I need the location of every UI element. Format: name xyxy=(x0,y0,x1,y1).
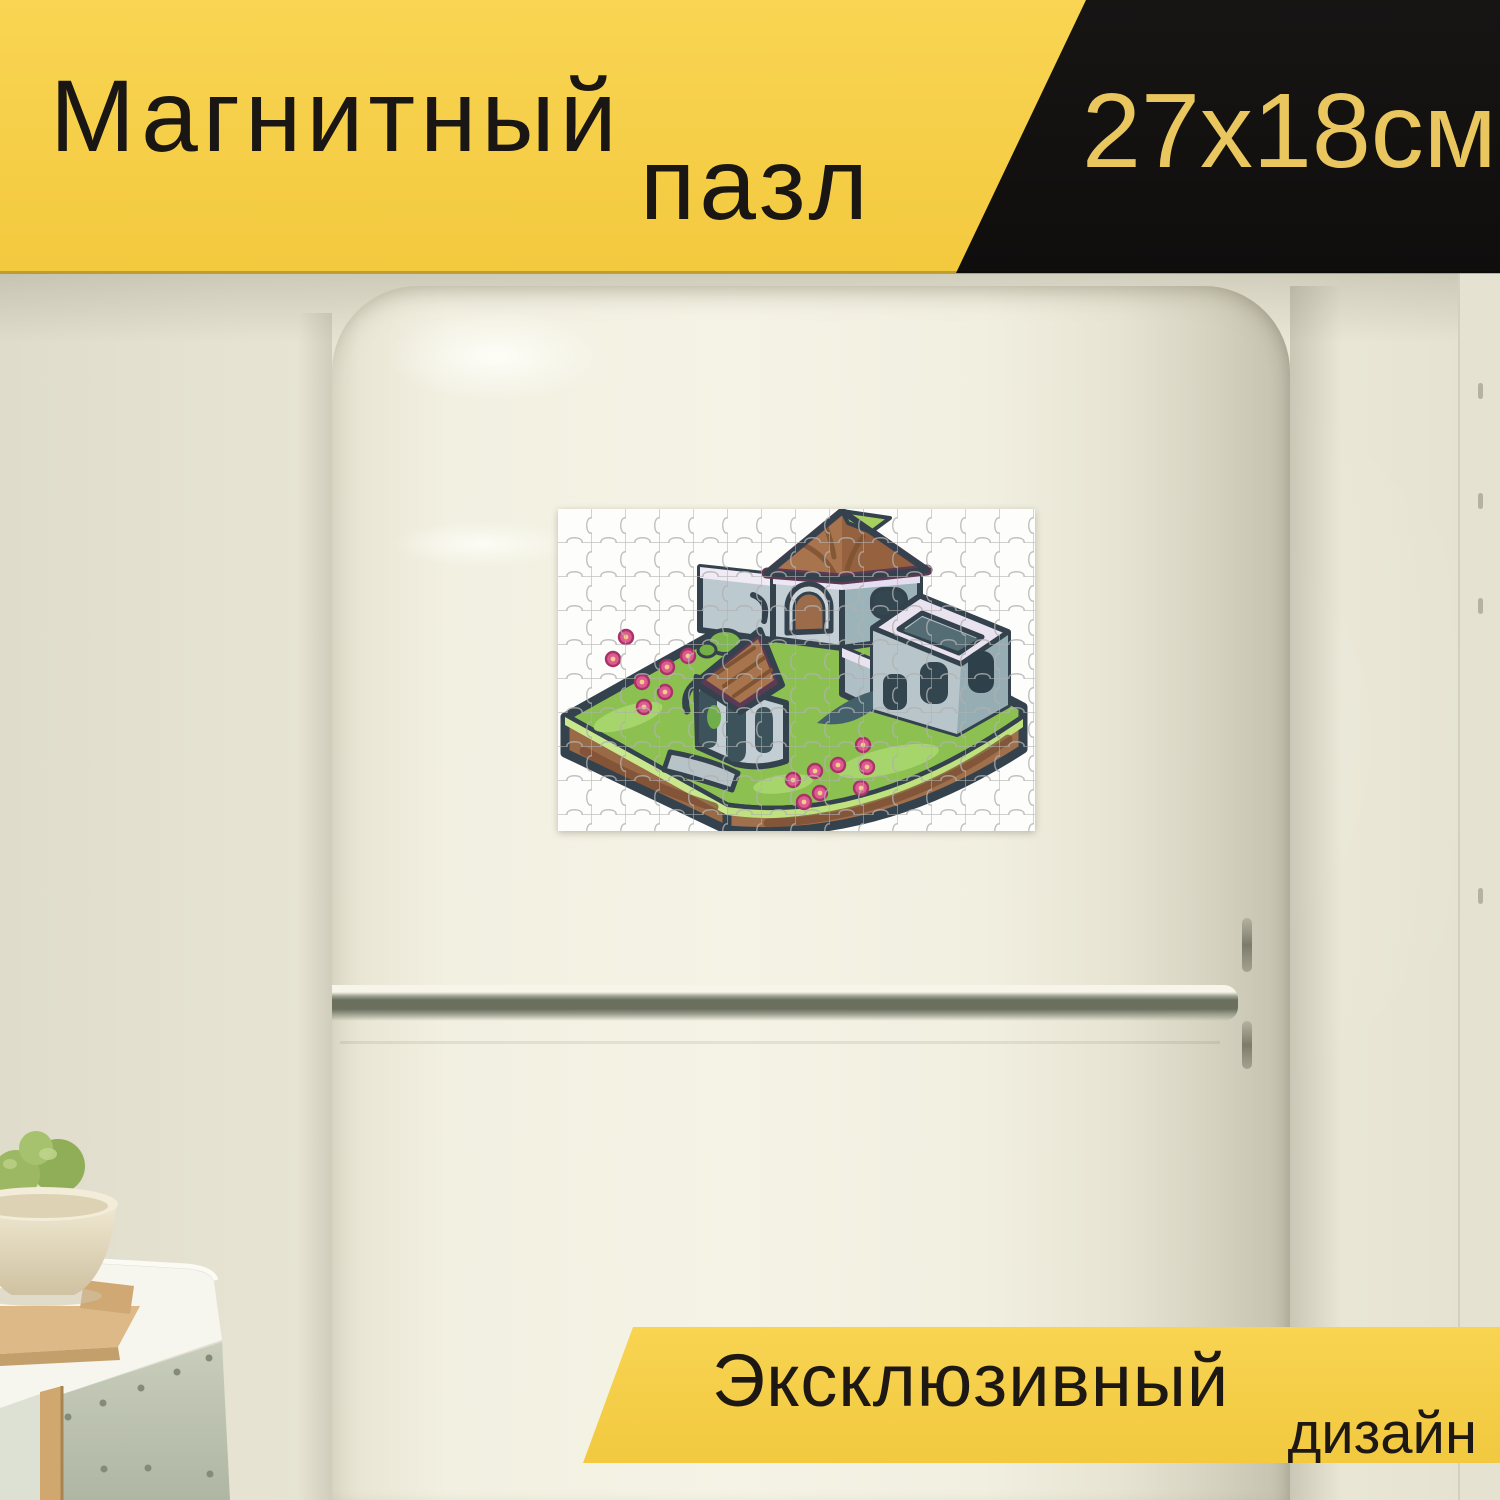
door-frame-mark xyxy=(1478,888,1483,904)
refrigerator xyxy=(332,286,1290,1500)
exclusive-design-line2: дизайн xyxy=(1287,1405,1477,1463)
fridge-door-seam xyxy=(332,985,1238,1021)
wooden-leg xyxy=(40,1386,62,1500)
top-banner: Магнитный пазл 27x18см xyxy=(0,0,1500,273)
fridge-door-seam-lower xyxy=(340,1041,1220,1044)
fridge-hinge-lower xyxy=(1242,1021,1252,1069)
exclusive-design-line1: Эксклюзивный xyxy=(712,1344,1229,1418)
size-badge: 27x18см xyxy=(1082,78,1497,184)
kitchen-photo xyxy=(0,273,1500,1500)
magnet-puzzle xyxy=(558,509,1035,831)
door-frame-mark xyxy=(1478,383,1483,399)
fridge-hinge-upper xyxy=(1242,918,1252,972)
door-frame-mark xyxy=(1478,493,1483,509)
top-banner-edge-shadow xyxy=(0,271,1500,274)
door-frame-strip xyxy=(1458,273,1500,1500)
puzzle-illustration xyxy=(558,509,1035,831)
puzzle-grid-overlay xyxy=(558,509,1035,831)
door-frame-mark xyxy=(1478,598,1483,614)
product-title-line1: Магнитный xyxy=(50,65,622,167)
counter-scene xyxy=(0,1100,340,1500)
product-promo-root: Магнитный пазл 27x18см Эксклюзивный диза… xyxy=(0,0,1500,1500)
product-title-line2: пазл xyxy=(640,133,872,235)
fridge-right-shadow xyxy=(1290,286,1342,1500)
